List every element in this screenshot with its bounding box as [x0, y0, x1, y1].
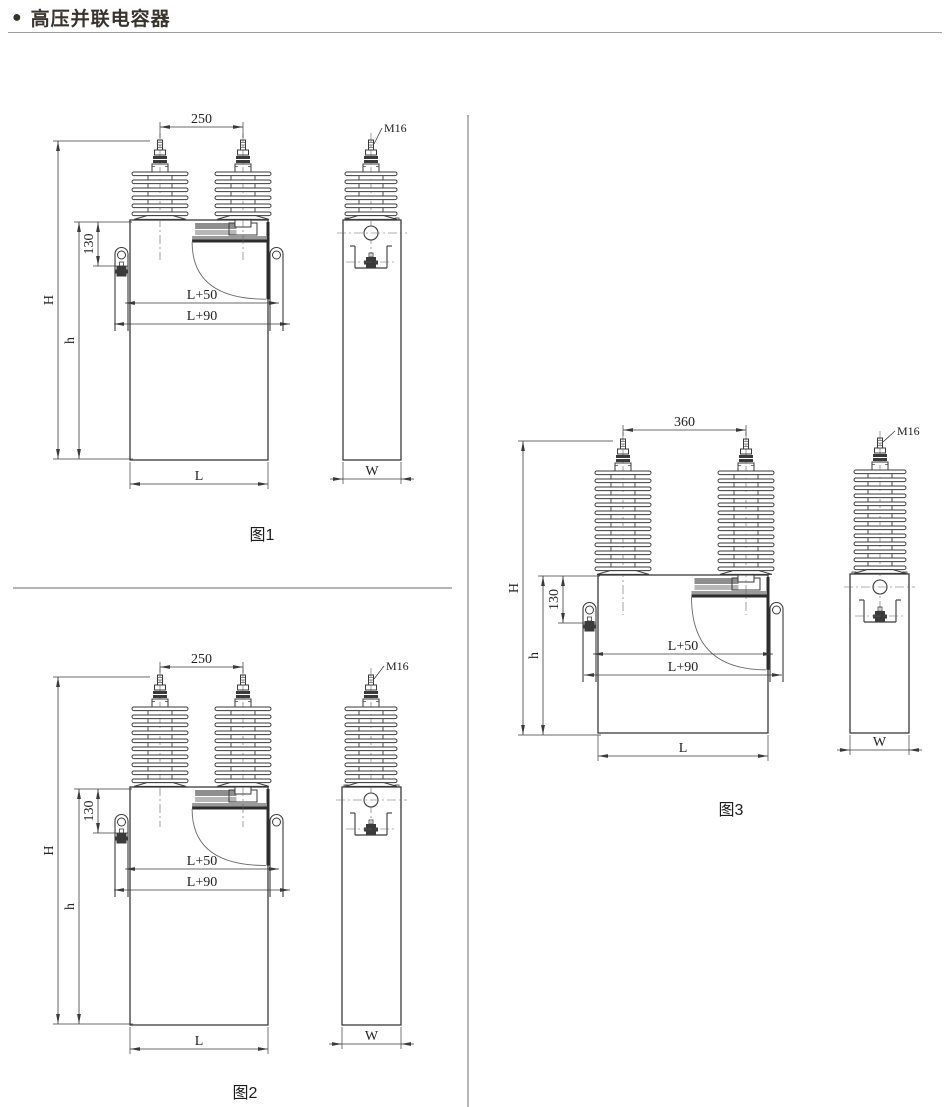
- terminal-spacing-dim: 250: [191, 652, 212, 667]
- total-height-dim: H: [42, 845, 57, 855]
- cover-to-bolt-dim: 130: [82, 234, 97, 255]
- terminal-thread-label: M16: [384, 121, 407, 135]
- tank-length-dim: L: [195, 469, 204, 484]
- tank-height-dim: h: [63, 337, 78, 344]
- figure-1-drawing: 250Hh130L+50L+90LWM16: [42, 112, 414, 489]
- figure1-caption: 图1: [250, 521, 275, 545]
- tank-height-dim: h: [527, 652, 542, 659]
- tank-length-dim: L: [679, 741, 688, 756]
- tank-height-dim: h: [63, 903, 78, 910]
- tank-width-dim: W: [365, 464, 379, 479]
- terminal-thread-label: M16: [897, 424, 920, 438]
- l-plus-90-dim: L+90: [187, 875, 217, 890]
- tank-width-dim: W: [365, 1029, 379, 1044]
- row-divider: [13, 587, 452, 589]
- catalog-page: ● 高压并联电容器 250Hh130L+50L+90LWM16250Hh130L…: [0, 0, 950, 1107]
- figure-2-drawing: 250Hh130L+50L+90LWM16: [42, 652, 414, 1054]
- column-divider: [467, 115, 469, 1107]
- terminal-spacing-dim: 250: [191, 112, 212, 127]
- terminal-spacing-dim: 360: [674, 415, 695, 430]
- capacitor-dimension-drawings: 250Hh130L+50L+90LWM16250Hh130L+50L+90LWM…: [0, 0, 950, 1107]
- figure-3-drawing: 360Hh130L+50L+90LWM16: [507, 415, 922, 761]
- l-plus-50-dim: L+50: [187, 288, 217, 303]
- figure3-caption: 图3: [719, 796, 744, 820]
- l-plus-50-dim: L+50: [187, 854, 217, 869]
- l-plus-90-dim: L+90: [187, 309, 217, 324]
- terminal-thread-label: M16: [386, 659, 409, 673]
- total-height-dim: H: [42, 295, 57, 305]
- tank-width-dim: W: [873, 735, 887, 750]
- l-plus-50-dim: L+50: [668, 639, 698, 654]
- total-height-dim: H: [507, 583, 522, 593]
- l-plus-90-dim: L+90: [668, 660, 698, 675]
- figure2-caption: 图2: [233, 1079, 258, 1103]
- cover-to-bolt-dim: 130: [547, 589, 562, 610]
- tank-length-dim: L: [195, 1034, 204, 1049]
- cover-to-bolt-dim: 130: [82, 801, 97, 822]
